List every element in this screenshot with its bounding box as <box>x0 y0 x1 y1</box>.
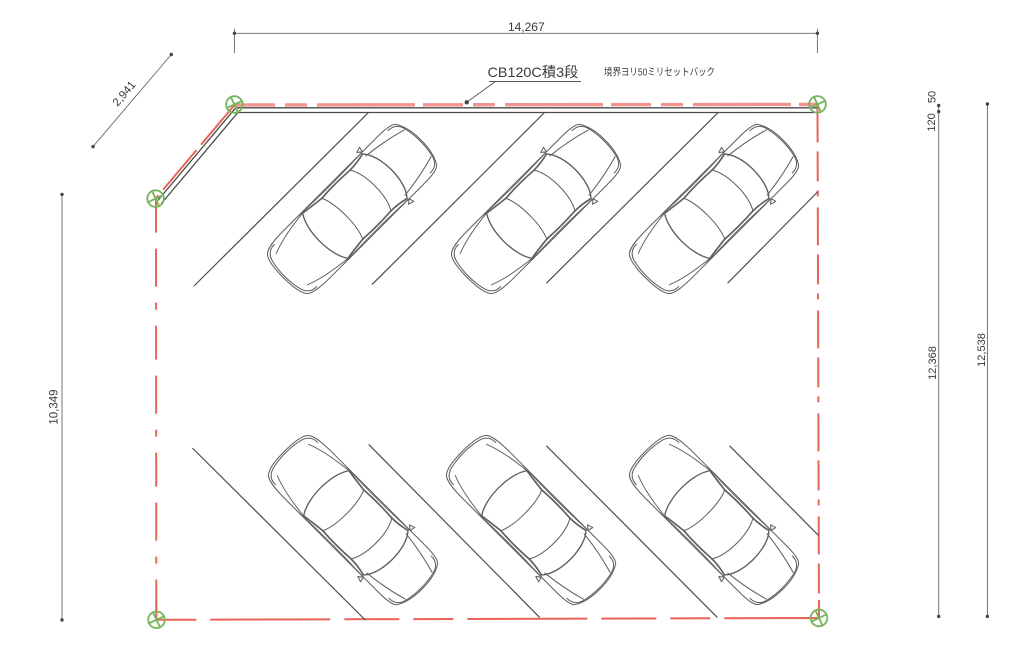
svg-text:14,267: 14,267 <box>508 20 545 34</box>
svg-text:境界ヨリ50ミリセットバック: 境界ヨリ50ミリセットバック <box>604 66 715 79</box>
svg-text:120: 120 <box>926 113 938 131</box>
svg-text:12,368: 12,368 <box>927 346 939 380</box>
svg-text:50: 50 <box>927 91 939 103</box>
svg-text:12,538: 12,538 <box>976 333 988 367</box>
svg-text:10,349: 10,349 <box>49 389 61 424</box>
svg-text:CB120C積3段: CB120C積3段 <box>488 64 579 80</box>
